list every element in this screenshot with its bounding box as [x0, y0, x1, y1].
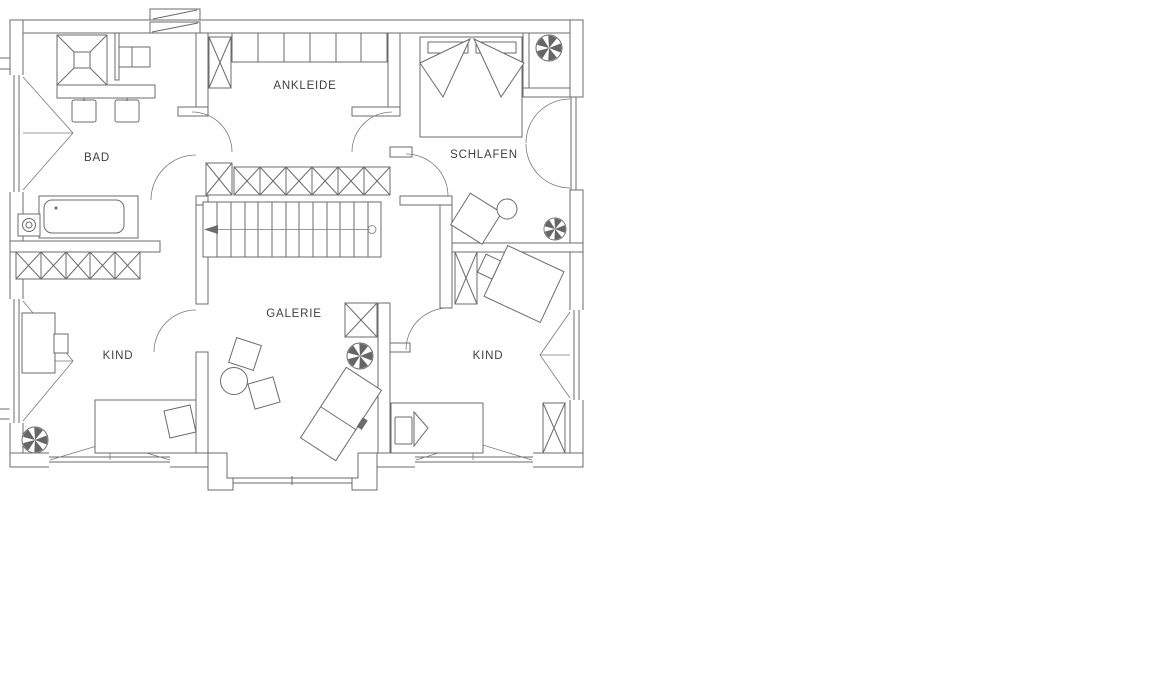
label-ankleide: ANKLEIDE — [273, 80, 336, 92]
desk-kind-left — [22, 313, 68, 373]
shower-partition — [115, 33, 119, 80]
room-bad-furniture — [18, 33, 155, 238]
wardrobe-kind-right-top — [455, 252, 477, 304]
shower — [57, 35, 107, 85]
double-bed — [420, 37, 524, 137]
fan-icon — [22, 427, 48, 453]
bed-kind-left — [95, 400, 196, 453]
wc — [18, 214, 40, 236]
label-kind-right: KIND — [473, 350, 504, 362]
floor-plan-drawing: BAD ANKLEIDE SCHLAFEN GALERIE KIND KIND — [0, 0, 1176, 690]
galerie-table — [221, 368, 248, 395]
lounger — [301, 367, 386, 463]
bay-piers — [208, 453, 377, 490]
room-galerie-furniture — [221, 338, 386, 464]
wardrobe-ankleide — [232, 33, 387, 62]
wardrobe-kind-left — [16, 252, 140, 279]
shaft-top — [209, 37, 231, 88]
double-washbasin — [57, 85, 155, 122]
french-balcony-doors — [526, 97, 576, 190]
shaft-galerie — [345, 303, 377, 337]
room-kind-left-furniture — [22, 313, 196, 453]
bed-kind-right — [391, 403, 483, 453]
fan-icon — [536, 35, 562, 61]
dresser-row-stairs — [234, 167, 390, 195]
shaft-stairs — [206, 163, 232, 195]
bath-cabinet — [119, 47, 150, 67]
galerie-chair-1 — [229, 338, 262, 371]
galerie-chair-2 — [248, 377, 280, 409]
label-schlafen: SCHLAFEN — [450, 149, 518, 161]
bedroom-side-table — [497, 199, 517, 219]
label-bad: BAD — [84, 152, 110, 164]
wardrobe-kind-right-east — [543, 403, 565, 453]
bedroom-chair — [451, 193, 502, 244]
window-kind-right-east — [540, 310, 584, 400]
fan-icon — [347, 343, 373, 369]
staircase — [203, 202, 381, 257]
floor-plan-page: BAD ANKLEIDE SCHLAFEN GALERIE KIND KIND — [0, 0, 1176, 690]
bathtub — [39, 196, 138, 238]
label-galerie: GALERIE — [266, 308, 321, 320]
label-kind-left: KIND — [103, 350, 134, 362]
fan-icon — [544, 218, 566, 240]
